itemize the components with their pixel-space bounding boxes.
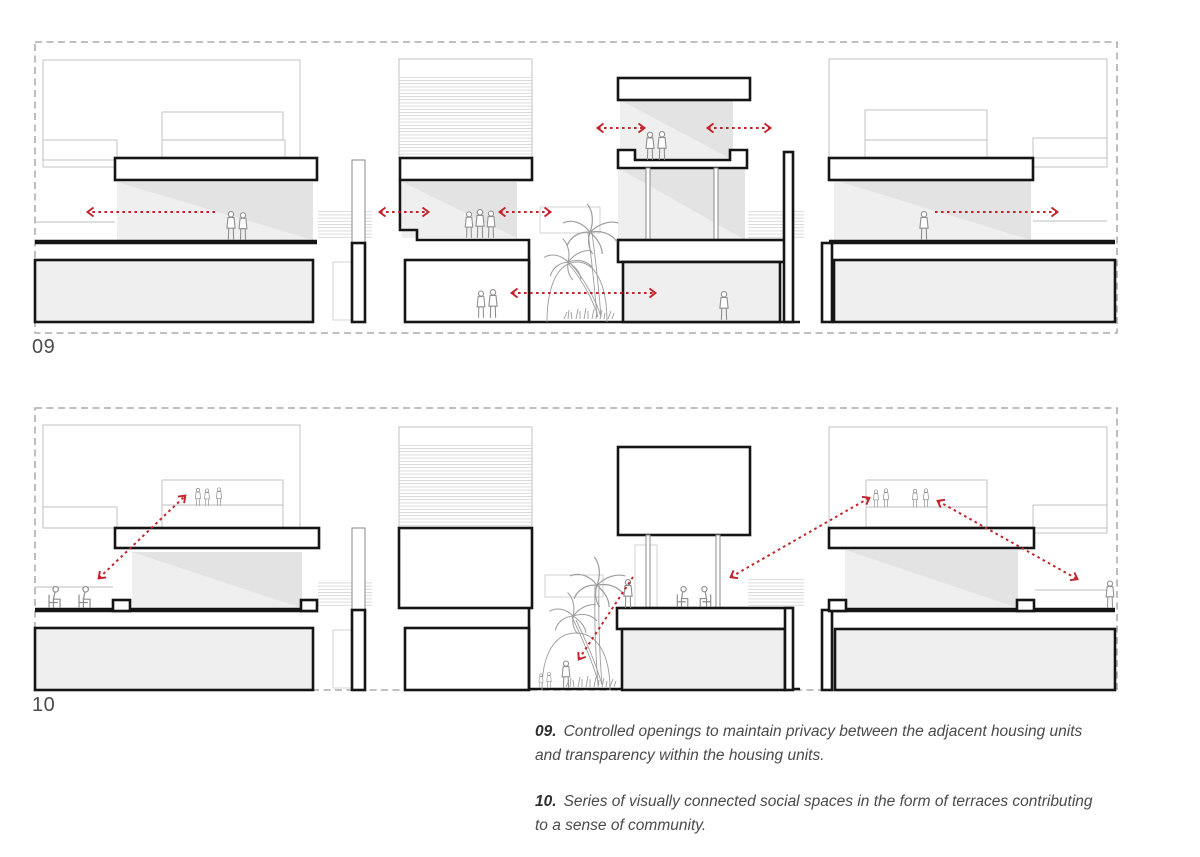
figure-10-label: 10	[32, 694, 55, 717]
figure-10-palm-trees	[542, 557, 625, 690]
caption-09: 09.Controlled openings to maintain priva…	[535, 720, 1135, 768]
figure-10-rooms	[132, 550, 1018, 608]
caption-10-number: 10.	[535, 793, 557, 810]
caption-09-number: 09.	[535, 723, 557, 740]
caption-10-text: Series of visually connected social spac…	[535, 793, 1093, 834]
figure-09-label: 09	[32, 336, 55, 359]
diagram-sheet: 09 10 09.Controlled openings to maintain…	[0, 0, 1200, 857]
figure-09-drawing	[35, 42, 1117, 333]
caption-10: 10.Series of visually connected social s…	[535, 790, 1135, 838]
figure-09-palm-trees	[542, 204, 618, 322]
figure-10-drawing	[35, 408, 1117, 690]
caption-09-text: Controlled openings to maintain privacy …	[535, 723, 1082, 764]
